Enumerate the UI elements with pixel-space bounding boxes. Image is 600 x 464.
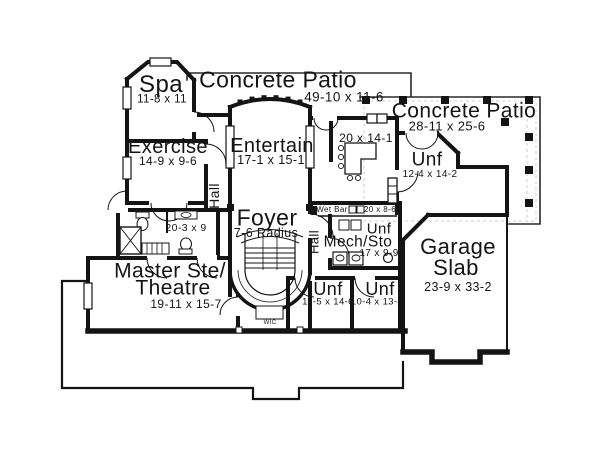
master-dims: 19-11 x 15-7 <box>150 298 221 310</box>
mech-sto-dims: 17 x 9-9 <box>359 249 398 259</box>
staircase <box>230 230 310 311</box>
unf-upper-dims: 12-4 x 14-2 <box>403 170 458 180</box>
master-bath-dims: 20-3 x 9 <box>165 223 206 234</box>
hall-left-label: Hall <box>207 183 221 209</box>
bottom-walls <box>88 331 507 362</box>
foyer-dims: 7-6 Radius <box>234 227 298 240</box>
entertain-dims: 17-1 x 15-1 <box>237 154 305 167</box>
patio-top-label: Concrete Patio <box>199 69 357 92</box>
unf-left-dims: 11-5 x 14-6 <box>302 297 354 307</box>
exercise-dims: 14-9 x 9-6 <box>139 155 197 167</box>
floor-plan: Spa 11-8 x 11 Concrete Patio 49-10 x 11-… <box>0 0 600 464</box>
bar-room-dims: 20 x 14-1 <box>339 132 393 144</box>
master-label-line2: Theatre <box>135 278 210 299</box>
garage-dims: 23-9 x 33-2 <box>424 281 492 294</box>
unf-upper-label: Unf <box>412 151 443 170</box>
wet-bar-dims: 20 x 8-6 <box>364 206 396 214</box>
garage-label-line2: Slab <box>433 257 479 279</box>
spa-dims: 11-8 x 11 <box>137 94 187 106</box>
unf-right-dims: 10-4 x 13-4 <box>351 297 403 307</box>
hall-right-label: Hall <box>308 230 321 254</box>
patio-top-dims: 49-10 x 11-6 <box>304 90 384 104</box>
wic-label: WIC <box>264 320 277 326</box>
patio-right-dims: 28-11 x 25-6 <box>409 120 486 133</box>
wet-bar-label: Wet Bar <box>316 206 348 214</box>
